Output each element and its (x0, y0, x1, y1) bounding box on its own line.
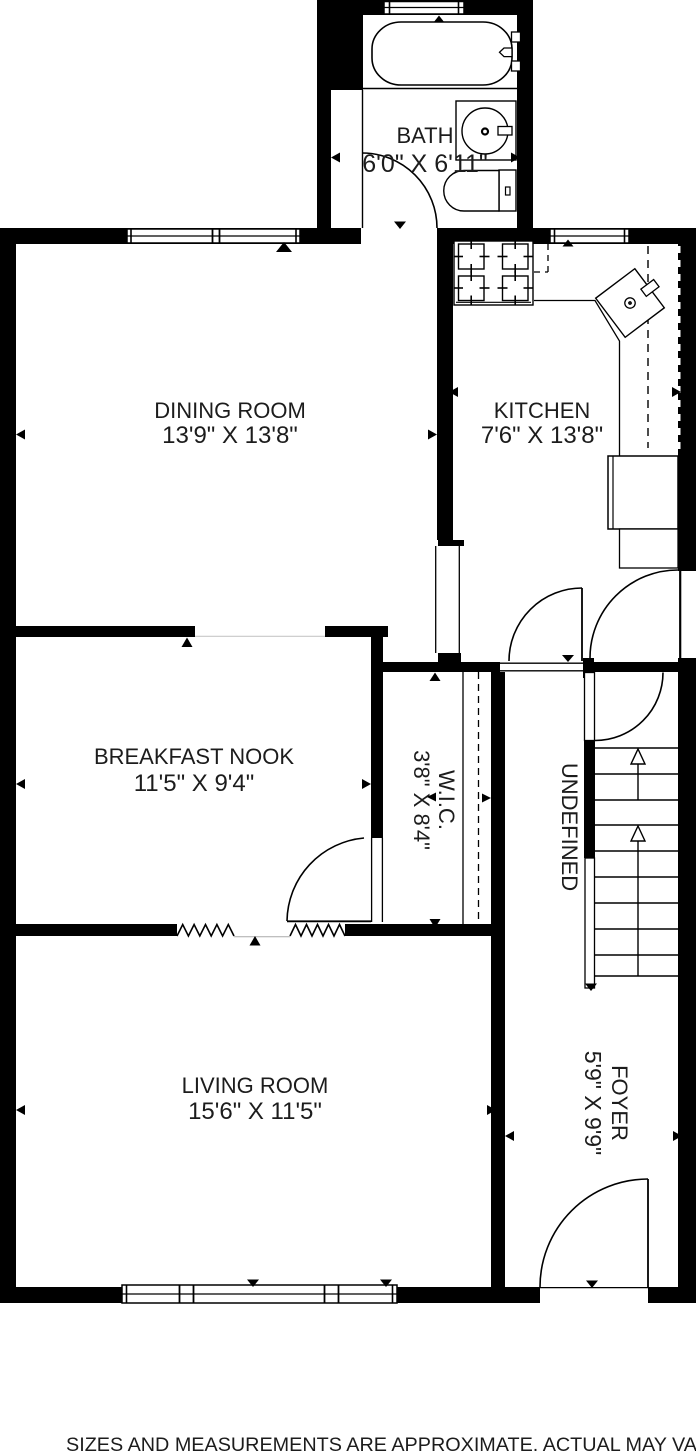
svg-text:KITCHEN: KITCHEN (494, 398, 591, 423)
svg-text:5'9" X 9'9": 5'9" X 9'9" (580, 1051, 606, 1155)
svg-text:7'6" X 13'8": 7'6" X 13'8" (481, 422, 603, 449)
svg-text:BREAKFAST NOOK: BREAKFAST NOOK (94, 744, 294, 769)
svg-text:FOYER: FOYER (607, 1065, 632, 1141)
svg-text:LIVING ROOM: LIVING ROOM (182, 1073, 329, 1098)
svg-text:BATH: BATH (396, 123, 453, 148)
svg-text:6'0" X 6'11": 6'0" X 6'11" (362, 150, 488, 178)
svg-text:W.I.C.: W.I.C. (434, 770, 459, 830)
svg-text:11'5" X 9'4": 11'5" X 9'4" (134, 770, 255, 797)
svg-text:DINING ROOM: DINING ROOM (154, 398, 306, 423)
svg-text:13'9" X 13'8": 13'9" X 13'8" (162, 422, 298, 449)
svg-text:15'6" X 11'5": 15'6" X 11'5" (188, 1098, 322, 1125)
svg-text:SIZES AND MEASUREMENTS ARE APP: SIZES AND MEASUREMENTS ARE APPROXIMATE. … (66, 1434, 696, 1452)
svg-text:UNDEFINED: UNDEFINED (557, 763, 582, 891)
svg-text:3'8" X 8'4": 3'8" X 8'4" (409, 750, 434, 850)
